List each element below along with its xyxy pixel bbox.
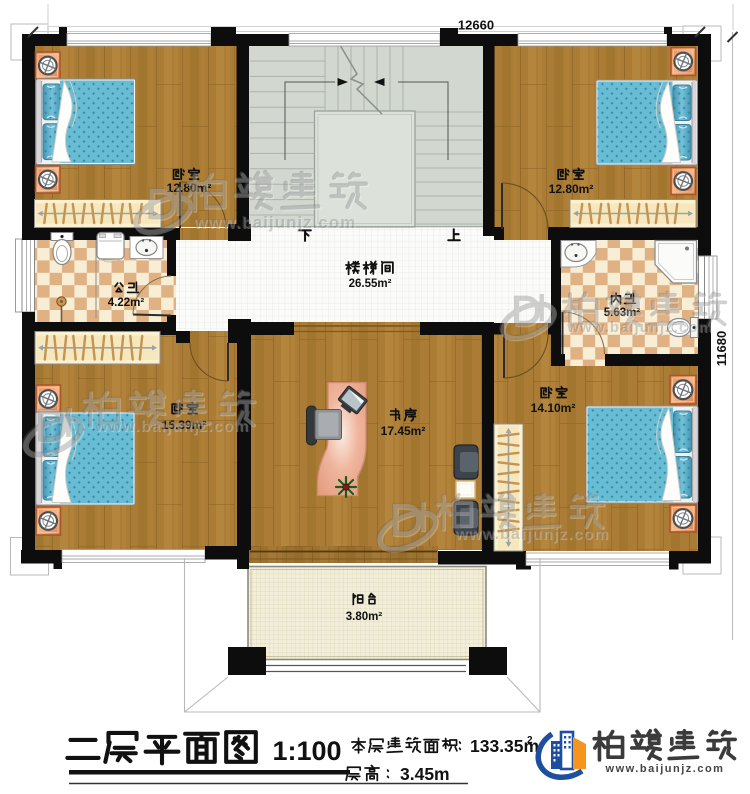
svg-text:www.baijunjz.com: www.baijunjz.com: [566, 319, 712, 336]
svg-text:11680: 11680: [714, 331, 729, 366]
svg-text:www.baijunjz.com: www.baijunjz.com: [94, 418, 249, 435]
svg-text:12660: 12660: [458, 18, 494, 33]
svg-text:12.80m²: 12.80m²: [549, 182, 594, 196]
svg-text:www.baijunjz.com: www.baijunjz.com: [454, 526, 609, 543]
svg-text:www.baijunjz.com: www.baijunjz.com: [605, 763, 725, 775]
svg-text:4.22m²: 4.22m²: [108, 297, 145, 309]
svg-text:26.55m²: 26.55m²: [349, 278, 392, 290]
svg-text:www.baijunjz.com: www.baijunjz.com: [193, 213, 357, 232]
svg-text:3.80m²: 3.80m²: [346, 611, 383, 623]
svg-text:1:100: 1:100: [272, 736, 341, 766]
svg-text:17.45m²: 17.45m²: [381, 424, 426, 438]
svg-text:3.45m: 3.45m: [400, 764, 450, 784]
svg-text:14.10m²: 14.10m²: [531, 401, 576, 415]
svg-text:2: 2: [527, 735, 533, 746]
